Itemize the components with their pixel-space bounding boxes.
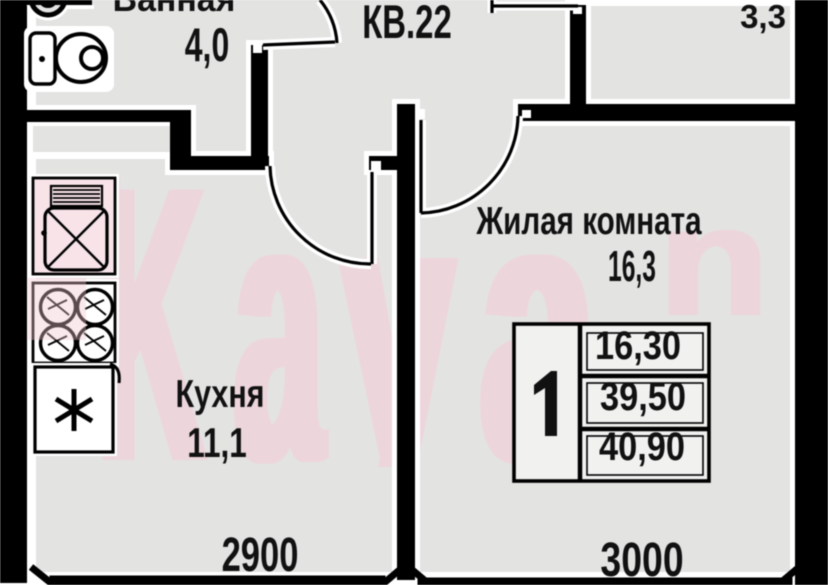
svg-text:Жилая комната: Жилая комната <box>476 200 703 243</box>
svg-text:КВ.22: КВ.22 <box>362 0 452 48</box>
svg-text:2900: 2900 <box>222 527 299 581</box>
svg-text:Кухня: Кухня <box>176 372 265 415</box>
svg-text:Ванная: Ванная <box>113 0 236 19</box>
svg-text:3,3: 3,3 <box>740 0 786 35</box>
svg-text:4,0: 4,0 <box>185 19 229 72</box>
svg-text:40,90: 40,90 <box>599 424 685 469</box>
svg-text:11,1: 11,1 <box>187 419 247 467</box>
svg-text:39,50: 39,50 <box>600 374 686 419</box>
svg-text:16,3: 16,3 <box>608 242 656 291</box>
svg-text:3000: 3000 <box>600 534 683 585</box>
svg-text:16,30: 16,30 <box>595 323 681 368</box>
